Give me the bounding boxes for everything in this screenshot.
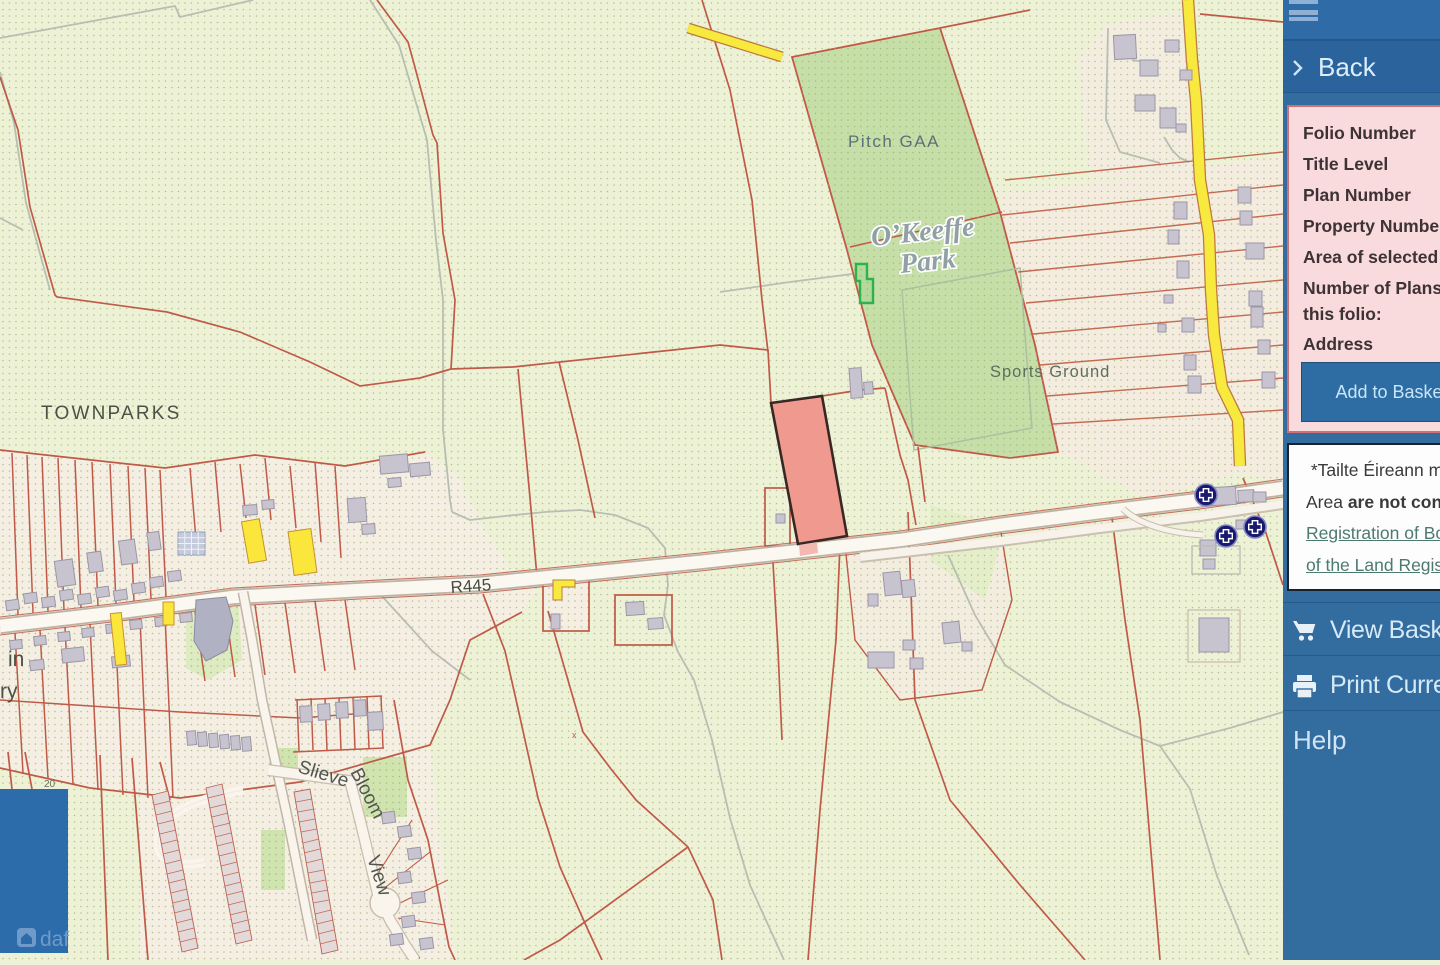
svg-text:20: 20 (44, 779, 56, 790)
svg-text:x: x (572, 730, 577, 740)
svg-text:Pitch GAA: Pitch GAA (848, 132, 940, 151)
svg-text:Park: Park (897, 243, 957, 280)
svg-text:R445: R445 (450, 575, 492, 597)
svg-text:ry: ry (0, 680, 18, 703)
svg-text:Sports Ground: Sports Ground (990, 363, 1110, 381)
svg-text:in: in (8, 648, 24, 671)
svg-text:TOWNPARKS: TOWNPARKS (41, 403, 182, 424)
svg-text:daf: daf (40, 928, 69, 951)
